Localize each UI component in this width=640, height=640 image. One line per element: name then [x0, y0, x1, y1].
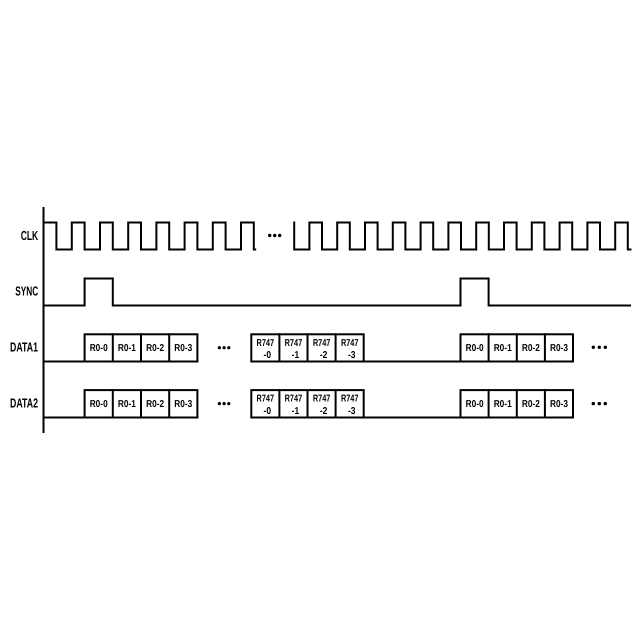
svg-text:-1: -1	[292, 406, 300, 417]
svg-text:R747: R747	[257, 338, 275, 349]
svg-text:R0-3: R0-3	[174, 399, 192, 410]
svg-text:R0-2: R0-2	[522, 343, 540, 354]
svg-text:R747: R747	[313, 338, 331, 349]
svg-text:R0-3: R0-3	[550, 399, 568, 410]
svg-text:R747: R747	[341, 338, 359, 349]
svg-text:R747: R747	[313, 394, 331, 405]
svg-text:CLK: CLK	[21, 228, 39, 243]
svg-text:R0-0: R0-0	[90, 399, 108, 410]
svg-text:DATA1: DATA1	[10, 340, 38, 355]
svg-text:R0-0: R0-0	[466, 343, 484, 354]
svg-text:-2: -2	[320, 406, 328, 417]
svg-text:R0-1: R0-1	[118, 343, 136, 354]
svg-text:R0-1: R0-1	[494, 343, 512, 354]
svg-text:R0-1: R0-1	[494, 399, 512, 410]
svg-text:SYNC: SYNC	[15, 284, 38, 299]
svg-text:R0-0: R0-0	[466, 399, 484, 410]
svg-text:R0-0: R0-0	[90, 343, 108, 354]
svg-text:R747: R747	[285, 338, 303, 349]
svg-text:R0-3: R0-3	[174, 343, 192, 354]
svg-text:R0-2: R0-2	[146, 399, 164, 410]
svg-text:R0-2: R0-2	[522, 399, 540, 410]
svg-text:R747: R747	[341, 394, 359, 405]
svg-text:R0-2: R0-2	[146, 343, 164, 354]
svg-text:R0-3: R0-3	[550, 343, 568, 354]
svg-text:-2: -2	[320, 350, 328, 361]
svg-text:-3: -3	[348, 406, 356, 417]
svg-text:-0: -0	[264, 350, 272, 361]
svg-text:-1: -1	[292, 350, 300, 361]
svg-text:R747: R747	[257, 394, 275, 405]
svg-text:-3: -3	[348, 350, 356, 361]
svg-text:R0-1: R0-1	[118, 399, 136, 410]
svg-text:DATA2: DATA2	[10, 396, 38, 411]
svg-text:R747: R747	[285, 394, 303, 405]
svg-text:-0: -0	[264, 406, 272, 417]
